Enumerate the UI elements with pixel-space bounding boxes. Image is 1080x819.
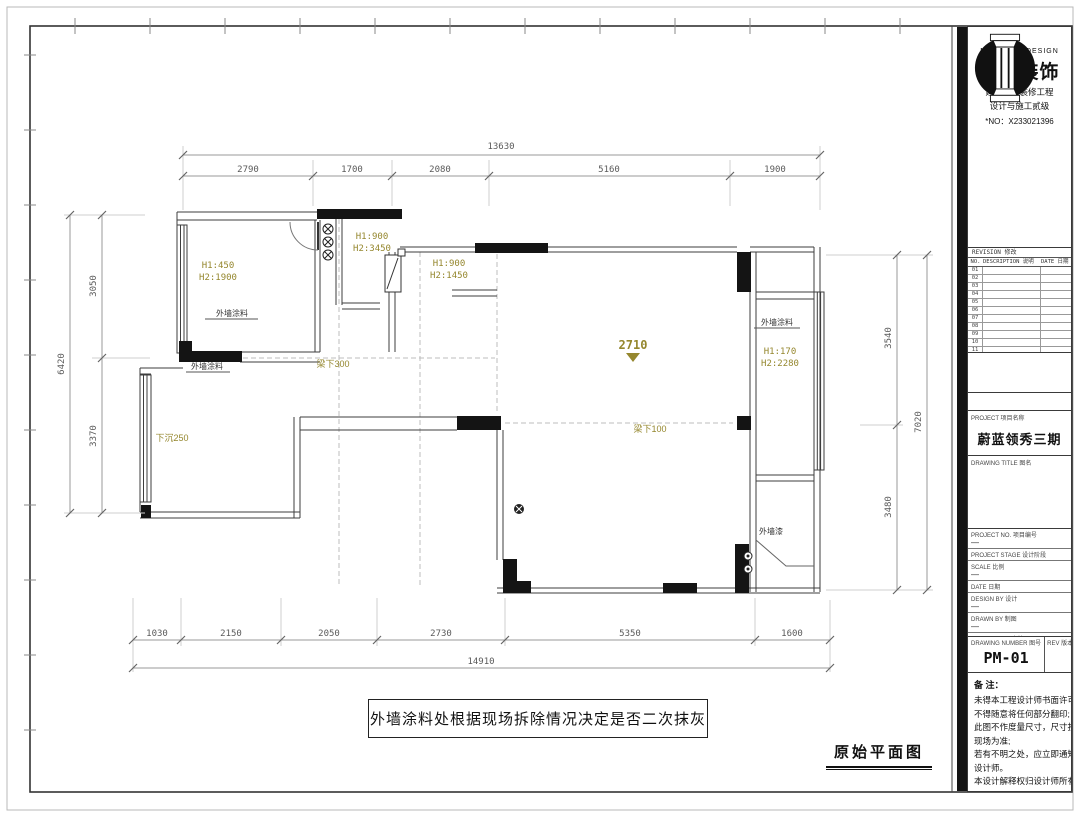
table-row: 01 (968, 267, 1071, 275)
drawing-number-section: DRAWING NUMBER 图号 PM-01 REV 版本 (968, 637, 1071, 673)
notes-section: 备 注： 未得本工程设计师书面许可 不得随意将任何部分翻印; 此图不作度量尺寸，… (968, 673, 1071, 791)
field-project-stage: PROJECT STAGE 设计阶段 (968, 549, 1071, 561)
rev-no: 10 (968, 339, 983, 346)
window-note-entry-1: H1:900 (356, 232, 389, 242)
field-label: PROJECT NO. 项目编号 (971, 530, 1068, 539)
rev-desc (983, 283, 1041, 290)
titleblock-spacer-1 (968, 353, 1071, 393)
note-line: 设计师。 (974, 762, 1065, 776)
table-row: 02 (968, 275, 1071, 283)
note-line: 未得本工程设计师书面许可 (974, 694, 1065, 708)
dimension-ticks (66, 151, 931, 672)
titleblock-divider-bar (957, 27, 967, 791)
walls-thin (140, 212, 824, 593)
rev-date (1041, 299, 1071, 306)
field-label: DESIGN BY 设计 (971, 594, 1068, 603)
dim-left-seg-1: 3050 (89, 275, 99, 297)
table-row: 08 (968, 323, 1071, 331)
rev-desc (983, 291, 1041, 298)
field-value: — (971, 623, 1068, 631)
window-note-entry-2: H2:3450 (353, 244, 391, 254)
notes-title: 备 注： (974, 678, 1065, 691)
rev-date (1041, 331, 1071, 338)
rev-no: 08 (968, 323, 983, 330)
rev-no: 01 (968, 267, 983, 274)
rev-desc (983, 275, 1041, 282)
note-line: 若有不明之处，应立即通知 (974, 748, 1065, 762)
dim-bottom-seg-1: 1030 (146, 629, 168, 639)
table-row: 06 (968, 307, 1071, 315)
field-date: DATE 日期 (968, 581, 1071, 593)
dim-right-total: 7020 (914, 411, 924, 433)
window-note-right-2: H2:2280 (761, 359, 799, 369)
note-line: 本设计解释权归设计师所有 (974, 775, 1065, 789)
revision-header-row: NO. DESCRIPTION 说明 DATE 日期 (968, 257, 1071, 267)
drawing-number-cell: DRAWING NUMBER 图号 PM-01 (968, 637, 1045, 672)
rev-no: 06 (968, 307, 983, 314)
field-label: DATE 日期 (971, 582, 1068, 591)
titleblock-spacer-2 (968, 393, 1071, 411)
rev-date (1041, 291, 1071, 298)
project-name: 蔚蓝领秀三期 (971, 429, 1068, 448)
drawing-title-section: DRAWING TITLE 图名 (968, 456, 1071, 529)
drawing-title-label: DRAWING TITLE 图名 (971, 458, 1068, 467)
field-value: — (971, 539, 1068, 547)
dim-left-total: 6420 (57, 353, 67, 375)
table-row: 03 (968, 283, 1071, 291)
dim-left-seg-2: 3370 (89, 425, 99, 447)
field-value: — (971, 571, 1068, 579)
window-note-balcony-2: H2:1900 (199, 273, 237, 283)
window-note-hall-1: H1:900 (433, 259, 466, 269)
rev-desc (983, 339, 1041, 346)
dim-bottom-seg-2: 2150 (220, 629, 242, 639)
rev-date (1041, 323, 1071, 330)
drawing-label-underline (826, 768, 932, 770)
shower-symbol (756, 540, 814, 566)
cert-number: *NO：X233021396 (985, 116, 1054, 127)
rev-desc (983, 299, 1041, 306)
ext-paint-label-3: 外墙涂料 (761, 317, 793, 327)
field-drawn-by: DRAWN BY 制图 — (968, 613, 1071, 633)
note-line: 现场为准; (974, 735, 1065, 749)
doors-windows (290, 222, 814, 566)
beam-note-300: 梁下300 (316, 358, 349, 369)
field-rows: PROJECT NO. 项目编号 — PROJECT STAGE 设计阶段 SC… (968, 529, 1071, 637)
door-arc (290, 222, 318, 250)
rev-desc (983, 323, 1041, 330)
field-value: — (971, 603, 1068, 611)
sheet-border (7, 7, 1073, 810)
rev-date (1041, 267, 1071, 274)
table-row: 07 (968, 315, 1071, 323)
title-block: NANHONG DESIGN 南鸿装饰 建筑装饰装修工程 设计与施工贰级 *NO… (967, 26, 1072, 792)
field-label: DRAWN BY 制图 (971, 614, 1068, 623)
floor-plan-canvas: 13630 2790 1700 2080 5160 1900 1030 2150… (0, 0, 1080, 819)
table-row: 04 (968, 291, 1071, 299)
table-row: 10 (968, 339, 1071, 347)
dim-bottom-seg-4: 2730 (430, 629, 452, 639)
revision-col-desc: DESCRIPTION 说明 (983, 258, 1041, 266)
window-note-hall-2: H2:1450 (430, 271, 468, 281)
dim-top-seg-5: 1900 (764, 165, 786, 175)
revision-col-no: NO. (968, 258, 983, 266)
dim-bottom-seg-5: 5350 (619, 629, 641, 639)
window-note-balcony-1: H1:450 (202, 261, 235, 271)
dim-bottom-total: 14910 (467, 657, 494, 667)
project-section: PROJECT 项目名称 蔚蓝领秀三期 (968, 411, 1071, 456)
field-label: PROJECT STAGE 设计阶段 (971, 550, 1068, 559)
rev-desc (983, 307, 1041, 314)
cad-sheet: { "drawing": { "plan_title": "原始平面图", "n… (0, 0, 1080, 819)
company-logo-icon (968, 27, 1042, 109)
field-label: SCALE 比例 (971, 562, 1068, 571)
drawing-number-value: PM-01 (971, 649, 1041, 667)
height-mark-triangle-icon (626, 353, 640, 362)
table-row: 05 (968, 299, 1071, 307)
dim-right-seg-2: 3480 (884, 496, 894, 518)
ext-paint-label-2: 外墙涂料 (191, 361, 223, 371)
rev-desc (983, 315, 1041, 322)
dim-bottom-seg-6: 1600 (781, 629, 803, 639)
dim-top-seg-4: 5160 (598, 165, 620, 175)
field-design-by: DESIGN BY 设计 — (968, 593, 1071, 613)
rev-date (1041, 307, 1071, 314)
site-note-text: 外墙涂料处根据现场拆除情况决定是否二次抹灰 (370, 708, 706, 729)
window-note-right-1: H1:170 (764, 347, 797, 357)
table-row: 09 (968, 331, 1071, 339)
ext-paint-label-4: 外墙漆 (759, 526, 783, 536)
ext-paint-label-1: 外墙涂料 (216, 308, 248, 318)
revision-table: REVISION 修改 NO. DESCRIPTION 说明 DATE 日期 0… (968, 248, 1071, 353)
rev-date (1041, 275, 1071, 282)
drawing-label: 原始平面图 (826, 741, 932, 770)
revision-rows: 01 02 03 04 05 06 07 08 09 10 11 12 (968, 267, 1071, 353)
sunken-note: 下沉250 (155, 433, 188, 443)
revision-col-date: DATE 日期 (1041, 258, 1071, 266)
site-note-box: 外墙涂料处根据现场拆除情况决定是否二次抹灰 (368, 699, 708, 738)
rev-no: 03 (968, 283, 983, 290)
rev-no: 07 (968, 315, 983, 322)
rev-desc (983, 267, 1041, 274)
dim-bottom-seg-3: 2050 (318, 629, 340, 639)
plan-annotations: H1:450 H2:1900 H1:900 H2:3450 H1:900 H2:… (155, 232, 798, 443)
project-label: PROJECT 项目名称 (971, 413, 1068, 422)
rev-label: REV 版本 (1047, 638, 1071, 647)
dim-top-seg-2: 1700 (341, 165, 363, 175)
brand-section: NANHONG DESIGN 南鸿装饰 建筑装饰装修工程 设计与施工贰级 *NO… (968, 27, 1071, 248)
dim-top-seg-1: 2790 (237, 165, 259, 175)
note-line: 不得随意将任何部分翻印; (974, 708, 1065, 722)
rev-cell: REV 版本 (1045, 637, 1071, 672)
field-scale: SCALE 比例 — (968, 561, 1071, 581)
rev-date (1041, 283, 1071, 290)
rev-no: 04 (968, 291, 983, 298)
dim-top-seg-3: 2080 (429, 165, 451, 175)
drawing-number-label: DRAWING NUMBER 图号 (971, 638, 1041, 647)
rev-no: 02 (968, 275, 983, 282)
note-line: 此图不作度量尺寸，尺寸按 (974, 721, 1065, 735)
rev-date (1041, 315, 1071, 322)
dim-top-total: 13630 (487, 142, 514, 152)
dim-right-seg-1: 3540 (884, 327, 894, 349)
field-project-no: PROJECT NO. 项目编号 — (968, 529, 1071, 549)
ceiling-height-mark: 2710 (619, 338, 648, 352)
rev-date (1041, 339, 1071, 346)
rev-no: 09 (968, 331, 983, 338)
beam-note-100: 梁下100 (633, 423, 666, 434)
dimension-lines (70, 155, 927, 668)
drawing-label-text: 原始平面图 (826, 741, 932, 768)
rev-desc (983, 331, 1041, 338)
rev-no: 05 (968, 299, 983, 306)
revision-title: REVISION 修改 (968, 248, 1071, 257)
